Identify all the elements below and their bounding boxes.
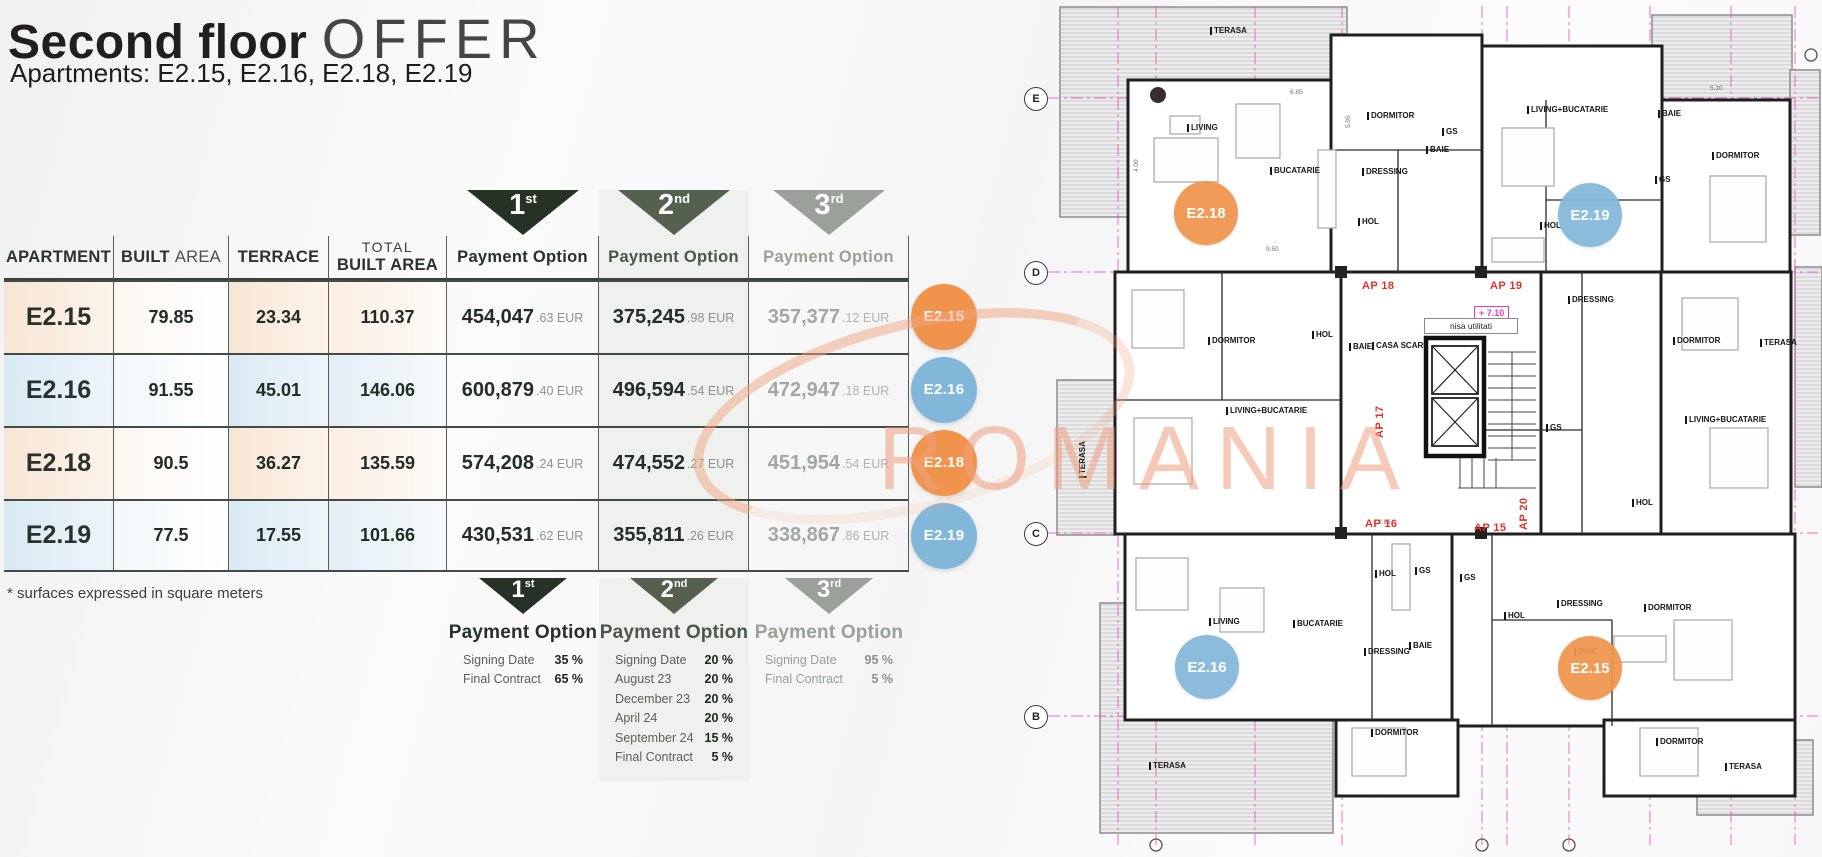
ordinal: 2 xyxy=(658,191,674,220)
schedule-title: Payment Option xyxy=(599,622,749,644)
schedule-title: Payment Option xyxy=(749,622,909,644)
room-label: DRESSING xyxy=(1557,600,1603,608)
apartments-subtitle: Apartments: E2.15, E2.16, E2.18, E2.19 xyxy=(10,58,473,89)
room-label: HOL xyxy=(1632,499,1653,507)
col-header-payment1: Payment Option xyxy=(447,236,599,280)
badge-cell: E2.18 xyxy=(909,426,979,499)
spacer xyxy=(329,190,447,236)
apartment-number-label: AP 17 xyxy=(1374,406,1386,438)
room-label: HOL xyxy=(1540,222,1561,230)
schedule-row: August 2320 % xyxy=(615,670,733,689)
badge-cell: E2.19 xyxy=(909,499,979,572)
option1-triangle: 1 st xyxy=(447,190,599,236)
ordinal-suffix: nd xyxy=(674,579,687,590)
built-bold: BUILT xyxy=(121,248,170,267)
room-label: TERASA xyxy=(1079,441,1087,478)
room-label: LIVING+BUCATARIE xyxy=(1226,407,1307,415)
triangle-2nd-icon: 2 nd xyxy=(630,578,718,614)
schedule-option1: 1 st Payment Option Signing Date35 %Fina… xyxy=(447,578,599,781)
built-light: AREA xyxy=(175,248,221,267)
ordinal: 2 xyxy=(661,578,674,602)
room-label: HOL xyxy=(1504,612,1525,620)
room-label: TERASA xyxy=(1149,762,1186,770)
price-option2-cell: 474,552.27 EUR xyxy=(599,426,749,499)
room-label: BAIE xyxy=(1349,343,1372,351)
room-label: DORMITOR xyxy=(1371,729,1418,737)
room-label: HOL xyxy=(1312,331,1333,339)
price-option3-cell: 472,947.18 EUR xyxy=(749,353,909,426)
apartment-number-label: AP 19 xyxy=(1490,280,1522,292)
option3-triangle: 3 rd xyxy=(749,190,909,236)
room-label: DRESSING xyxy=(1364,648,1410,656)
schedule-row: Signing Date35 % xyxy=(463,651,583,670)
triangle-1st-icon: 1 st xyxy=(467,190,579,235)
dimension-label: 9.50 xyxy=(1266,247,1279,254)
built-area-cell: 91.55 xyxy=(114,353,229,426)
col-header-terrace: TERRACE xyxy=(229,236,329,280)
built-area-cell: 79.85 xyxy=(114,280,229,353)
apartment-badge: E2.18 xyxy=(911,430,977,496)
room-label: LIVING+BUCATARIE xyxy=(1685,416,1766,424)
dimension-label: 4.00 xyxy=(1134,159,1141,172)
terrace-cell: 45.01 xyxy=(229,353,329,426)
col-header-payment3: Payment Option xyxy=(749,236,909,280)
price-option2-cell: 375,245.98 EUR xyxy=(599,280,749,353)
room-label: DORMITOR xyxy=(1712,152,1759,160)
terrace-cell: 23.34 xyxy=(229,280,329,353)
room-label: HOL xyxy=(1375,570,1396,578)
room-label: DORMITOR xyxy=(1367,112,1414,120)
triangle-2nd-icon: 2 nd xyxy=(618,190,730,235)
grid-row-bubble: D xyxy=(1024,261,1048,285)
room-label: GS xyxy=(1546,424,1562,432)
ordinal-suffix: st xyxy=(525,192,537,205)
schedule-row: December 2320 % xyxy=(615,690,733,709)
room-label: BUCATARIE xyxy=(1293,620,1343,628)
room-label: TERASA xyxy=(1725,763,1762,771)
schedule-list: Signing Date20 %August 2320 %December 23… xyxy=(599,651,749,767)
col-header-built-area: BUILT AREA xyxy=(114,236,229,280)
triangle-3rd-icon: 3 rd xyxy=(773,190,885,235)
apartment-number-label: AP 16 xyxy=(1365,518,1397,530)
room-label: GS xyxy=(1442,128,1458,136)
apartment-cell: E2.19 xyxy=(4,499,114,572)
schedule-list: Signing Date35 %Final Contract65 % xyxy=(447,651,599,690)
built-area-cell: 90.5 xyxy=(114,426,229,499)
room-label: DORMITOR xyxy=(1644,604,1691,612)
ordinal: 3 xyxy=(817,578,830,602)
payment-schedules: 1 st Payment Option Signing Date35 %Fina… xyxy=(4,578,979,781)
price-option1-cell: 454,047.63 EUR xyxy=(447,280,599,353)
schedule-row: April 2420 % xyxy=(615,709,733,728)
room-label: LIVING xyxy=(1209,618,1240,626)
schedule-list: Signing Date95 %Final Contract5 % xyxy=(749,651,909,690)
schedule-row: September 2415 % xyxy=(615,729,733,748)
badge-cell: E2.15 xyxy=(909,280,979,353)
room-label: GS xyxy=(1415,567,1431,575)
plan-apartment-badge: E2.18 xyxy=(1174,181,1238,245)
schedule-option3: 3 rd Payment Option Signing Date95 %Fina… xyxy=(749,578,909,781)
apartment-badge: E2.16 xyxy=(911,357,977,423)
utility-niche-label: nisa utilitati xyxy=(1424,318,1518,334)
ordinal: 1 xyxy=(511,578,524,602)
spacer xyxy=(909,236,979,280)
pricing-table: 1 st 2 nd 3 rd APARTMENT BUILT AREA TERR… xyxy=(4,190,979,572)
room-label: GS xyxy=(1460,574,1476,582)
price-option1-cell: 574,208.24 EUR xyxy=(447,426,599,499)
col-header-total-built-area: TOTAL BUILT AREA xyxy=(329,236,447,280)
room-label: DORMITOR xyxy=(1208,337,1255,345)
apartment-number-label: AP 20 xyxy=(1518,498,1530,530)
dimension-label: 5.10 xyxy=(1710,86,1723,93)
offer-page: Second floor OFFER Apartments: E2.15, E2… xyxy=(0,0,1822,857)
ordinal: 3 xyxy=(814,191,830,220)
grid-row-bubble: B xyxy=(1024,705,1048,729)
schedule-option2: 2 nd Payment Option Signing Date20 %Augu… xyxy=(599,578,749,781)
price-option2-cell: 355,811.26 EUR xyxy=(599,499,749,572)
terrace-cell: 17.55 xyxy=(229,499,329,572)
terrace-cell: 36.27 xyxy=(229,426,329,499)
room-label: CASA SCARII xyxy=(1372,342,1428,350)
triangle-3rd-icon: 3 rd xyxy=(785,578,873,614)
schedule-row: Final Contract5 % xyxy=(765,670,893,689)
room-label: LIVING+BUCATARIE xyxy=(1527,106,1608,114)
floor-plan-drawing xyxy=(1022,0,1822,857)
schedule-title: Payment Option xyxy=(447,622,599,644)
grid-row-bubble: E xyxy=(1024,87,1048,111)
col-header-apartment: APARTMENT xyxy=(4,236,114,280)
option2-triangle: 2 nd xyxy=(599,190,749,236)
total-built-area-cell: 135.59 xyxy=(329,426,447,499)
schedule-row: Final Contract5 % xyxy=(615,748,733,767)
dimension-label: 6.85 xyxy=(1290,90,1303,97)
grid-row-bubble: C xyxy=(1024,522,1048,546)
spacer xyxy=(909,190,979,236)
schedule-row: Signing Date20 % xyxy=(615,651,733,670)
price-option2-cell: 496,594.54 EUR xyxy=(599,353,749,426)
apartment-badge: E2.19 xyxy=(911,503,977,569)
room-label: BAIE xyxy=(1409,642,1432,650)
room-label: DRESSING xyxy=(1362,168,1408,176)
ordinal-suffix: st xyxy=(525,579,535,590)
apartment-number-label: AP 15 xyxy=(1474,522,1506,534)
col-header-payment2: Payment Option xyxy=(599,236,749,280)
room-label: GS xyxy=(1655,176,1671,184)
ordinal: 1 xyxy=(509,191,525,220)
room-label: DRESSING xyxy=(1568,296,1614,304)
price-option1-cell: 600,879.40 EUR xyxy=(447,353,599,426)
built-area-cell: 77.5 xyxy=(114,499,229,572)
apartment-cell: E2.16 xyxy=(4,353,114,426)
price-option3-cell: 338,867.86 EUR xyxy=(749,499,909,572)
room-label: DORMITOR xyxy=(1673,337,1720,345)
room-label: TERASA xyxy=(1210,27,1247,35)
room-label: HOL xyxy=(1358,218,1379,226)
schedule-row: Signing Date95 % xyxy=(765,651,893,670)
apartment-badge: E2.15 xyxy=(911,284,977,350)
spacer xyxy=(4,190,114,236)
badge-cell: E2.16 xyxy=(909,353,979,426)
spacer xyxy=(114,190,229,236)
ordinal-suffix: nd xyxy=(674,192,690,205)
room-label: BAIE xyxy=(1658,110,1681,118)
room-label: BUCATARIE xyxy=(1270,167,1320,175)
price-option3-cell: 357,377.12 EUR xyxy=(749,280,909,353)
apartment-number-label: AP 18 xyxy=(1362,280,1394,292)
room-label: DORMITOR xyxy=(1656,738,1703,746)
apartment-cell: E2.18 xyxy=(4,426,114,499)
apartment-cell: E2.15 xyxy=(4,280,114,353)
total-built-area-cell: 146.06 xyxy=(329,353,447,426)
total-label: TOTAL xyxy=(362,239,413,255)
price-option1-cell: 430,531.62 EUR xyxy=(447,499,599,572)
spacer xyxy=(229,190,329,236)
price-option3-cell: 451,954.54 EUR xyxy=(749,426,909,499)
plan-apartment-badge: E2.15 xyxy=(1558,636,1622,700)
plan-apartment-badge: E2.16 xyxy=(1175,635,1239,699)
total-built-label: BUILT AREA xyxy=(337,256,438,275)
triangle-1st-icon: 1 st xyxy=(479,578,567,614)
floor-plan: TERASALIVINGBUCATARIEDORMITORDRESSINGBAI… xyxy=(1022,0,1822,857)
room-label: LIVING xyxy=(1187,124,1218,132)
ordinal-suffix: rd xyxy=(830,579,841,590)
dimension-label: 5.95 xyxy=(1346,115,1353,128)
schedule-row: Final Contract65 % xyxy=(463,670,583,689)
total-built-area-cell: 101.66 xyxy=(329,499,447,572)
plan-apartment-badge: E2.19 xyxy=(1558,183,1622,247)
total-built-area-cell: 110.37 xyxy=(329,280,447,353)
ordinal-suffix: rd xyxy=(831,192,844,205)
room-label: BAIE xyxy=(1426,146,1449,154)
room-label: TERASA xyxy=(1760,339,1797,347)
